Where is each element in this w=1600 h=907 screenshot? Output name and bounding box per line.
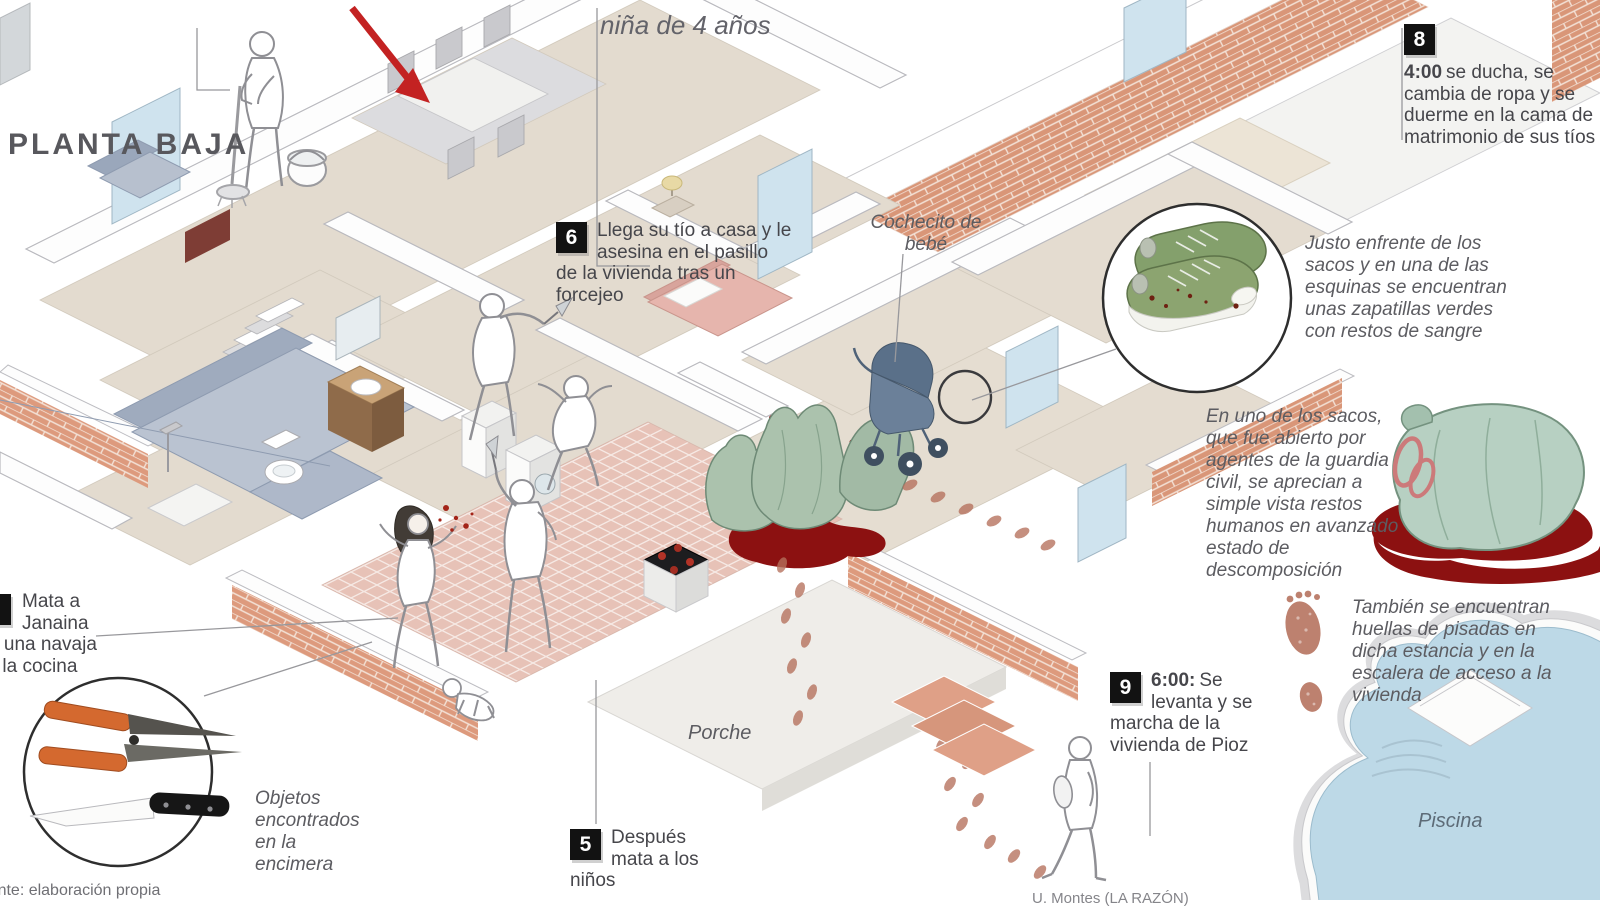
callout-5: 5 Después mata a los niños <box>570 827 712 892</box>
stroller-label: Cochecito de bebé <box>866 212 986 256</box>
callout-6-number: 6 <box>556 222 587 253</box>
porch-steps <box>892 676 1036 776</box>
callout-8-number: 8 <box>1404 24 1435 55</box>
opened-sack-illustration <box>1372 404 1600 584</box>
callout-9-number: 9 <box>1110 672 1141 703</box>
person-leaving <box>1042 737 1106 880</box>
objects-note: Objetos encontrados en la encimera <box>255 788 375 876</box>
porch-label: Porche <box>688 722 751 745</box>
callout-6: 6 Llega su tío a casa y le asesina en el… <box>556 220 794 307</box>
callout-8-time: 4:00 <box>1404 62 1446 83</box>
author-credit: U. Montes (LA RAZÓN) <box>1032 890 1189 907</box>
callout-janaina: Mata a Janaina con una navaja en la coci… <box>0 591 128 678</box>
big-footprint-icon <box>1281 591 1325 714</box>
callout-8: 4:00se ducha, se cambia de ropa y se due… <box>1404 62 1600 149</box>
sacks-note: En uno de los sacos, que fue abierto por… <box>1206 406 1400 582</box>
callout-6-text: Llega su tío a casa y le asesina en el p… <box>556 220 791 306</box>
shoes-evidence-circle <box>1103 204 1291 392</box>
source-credit: Fuente: elaboración propia <box>0 882 160 900</box>
callout-5-number: 5 <box>570 829 601 860</box>
objects-evidence-circle <box>24 678 242 866</box>
callout-9-time: 6:00: <box>1151 670 1199 691</box>
page-title: PLANTA BAJA <box>8 128 249 162</box>
callout-9: 9 6:00:Se levanta y se marcha de la vivi… <box>1110 670 1272 757</box>
pool-label: Piscina <box>1418 810 1482 833</box>
footprints-note: También se encuentran huellas de pisadas… <box>1352 597 1562 707</box>
shoes-note: Justo enfrente de los sacos y en una de … <box>1305 233 1527 343</box>
infographic-canvas: { "header": { "floor_label": "PLANTA BAJ… <box>0 0 1600 900</box>
girl-label: niña de 4 años <box>600 10 771 41</box>
